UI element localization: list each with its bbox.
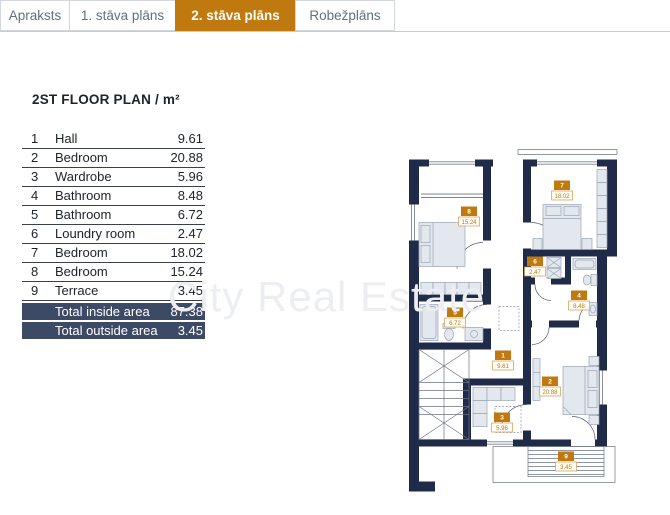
svg-text:5.96: 5.96 bbox=[496, 426, 508, 432]
room-area: 5.96 bbox=[178, 168, 205, 186]
room-area: 18.02 bbox=[170, 244, 205, 262]
table-row: 1Hall9.61 bbox=[22, 130, 205, 149]
room-name: Hall bbox=[55, 130, 178, 148]
room-area: 15.24 bbox=[170, 263, 205, 281]
room-label-1: 19.61 bbox=[493, 351, 514, 371]
total-row: Total outside area3.45 bbox=[22, 322, 205, 339]
tab-2-stāva-plāns[interactable]: 2. stāva plāns bbox=[175, 0, 296, 31]
svg-text:3.45: 3.45 bbox=[560, 465, 572, 471]
room-label-9: 93.45 bbox=[556, 452, 577, 472]
room-name: Loundry room bbox=[55, 225, 178, 243]
room-number: 5 bbox=[22, 206, 55, 224]
washing-machines bbox=[547, 258, 561, 279]
room-label-4: 48.48 bbox=[569, 291, 590, 311]
room-label-7: 718.02 bbox=[552, 181, 573, 201]
svg-text:2.47: 2.47 bbox=[529, 270, 541, 276]
room-name: Bathroom bbox=[55, 206, 178, 224]
svg-text:5: 5 bbox=[453, 310, 457, 317]
room-label-2: 220.88 bbox=[540, 377, 561, 397]
bedroom8-bed bbox=[419, 223, 465, 267]
svg-text:20.88: 20.88 bbox=[542, 390, 558, 396]
table-row: 5Bathroom6.72 bbox=[22, 206, 205, 225]
svg-text:18.02: 18.02 bbox=[554, 194, 570, 200]
tab-bar: Apraksts1. stāva plāns2. stāva plānsRobe… bbox=[0, 0, 670, 32]
svg-text:8: 8 bbox=[467, 209, 471, 216]
table-row: 8Bedroom15.24 bbox=[22, 263, 205, 282]
room-name: Wardrobe bbox=[55, 168, 178, 186]
table-row: 6Loundry room2.47 bbox=[22, 225, 205, 244]
page-title: 2ST FLOOR PLAN / m² bbox=[32, 92, 180, 107]
bathroom4-bathtub bbox=[573, 259, 596, 270]
content-area: 2ST FLOOR PLAN / m² 1Hall9.612Bedroom20.… bbox=[0, 32, 670, 514]
room-name: Bedroom bbox=[55, 244, 170, 262]
bathroom5-sink bbox=[465, 328, 483, 341]
room-number: 6 bbox=[22, 225, 55, 243]
bathroom4-toilet bbox=[583, 275, 597, 286]
room-area: 9.61 bbox=[178, 130, 205, 148]
floor-plan: 19.61220.8835.9648.4856.7262.47718.02815… bbox=[395, 144, 645, 500]
bedroom2-dresser bbox=[533, 359, 540, 401]
room-number: 9 bbox=[22, 282, 55, 300]
svg-text:2: 2 bbox=[548, 379, 552, 386]
room-area: 2.47 bbox=[178, 225, 205, 243]
room-label-8: 815.24 bbox=[459, 207, 480, 227]
table-row: 4Bathroom8.48 bbox=[22, 187, 205, 206]
room-name: Terrace bbox=[55, 282, 178, 300]
bedroom2-bed bbox=[563, 357, 599, 425]
hall-dashed-closet bbox=[499, 307, 519, 331]
svg-text:9.61: 9.61 bbox=[497, 364, 509, 370]
total-value: 87.38 bbox=[170, 303, 205, 320]
room-number: 7 bbox=[22, 244, 55, 262]
room-area: 20.88 bbox=[170, 149, 205, 167]
room-label-5: 56.72 bbox=[445, 308, 466, 328]
room-name: Bedroom bbox=[55, 149, 170, 167]
room-number: 1 bbox=[22, 130, 55, 148]
total-label: Total outside area bbox=[22, 322, 178, 339]
svg-text:15.24: 15.24 bbox=[461, 220, 477, 226]
bathroom5-shower bbox=[420, 305, 438, 341]
tab-apraksts[interactable]: Apraksts bbox=[0, 0, 70, 31]
svg-text:8.48: 8.48 bbox=[573, 304, 585, 310]
roof-overhang-lines bbox=[518, 150, 617, 155]
total-row: Total inside area87.38 bbox=[22, 303, 205, 320]
total-value: 3.45 bbox=[178, 322, 205, 339]
room-name: Bedroom bbox=[55, 263, 170, 281]
room-number: 3 bbox=[22, 168, 55, 186]
room-number: 4 bbox=[22, 187, 55, 205]
bedroom8-cabinets bbox=[421, 283, 481, 295]
total-label: Total inside area bbox=[22, 303, 170, 320]
bathroom4-sink bbox=[589, 303, 597, 316]
totals-table: Total inside area87.38Total outside area… bbox=[22, 303, 205, 341]
table-row: 2Bedroom20.88 bbox=[22, 149, 205, 168]
table-row: 7Bedroom18.02 bbox=[22, 244, 205, 263]
svg-text:4: 4 bbox=[577, 293, 581, 300]
tab-1-stāva-plāns[interactable]: 1. stāva plāns bbox=[69, 0, 176, 31]
bedroom7-bed bbox=[533, 205, 592, 250]
room-area: 8.48 bbox=[178, 187, 205, 205]
room-area: 6.72 bbox=[178, 206, 205, 224]
room-areas-table: 1Hall9.612Bedroom20.883Wardrobe5.964Bath… bbox=[22, 130, 205, 301]
tab-robežplāns[interactable]: Robežplāns bbox=[295, 0, 395, 31]
table-row: 3Wardrobe5.96 bbox=[22, 168, 205, 187]
table-row: 9Terrace3.45 bbox=[22, 282, 205, 301]
room-number: 2 bbox=[22, 149, 55, 167]
svg-text:6: 6 bbox=[533, 259, 537, 266]
terrace-deck bbox=[493, 447, 615, 483]
svg-text:9: 9 bbox=[564, 454, 568, 461]
svg-text:3: 3 bbox=[500, 415, 504, 422]
room-name: Bathroom bbox=[55, 187, 178, 205]
bedroom7-wardrobe bbox=[597, 170, 607, 248]
svg-text:7: 7 bbox=[560, 183, 564, 190]
room-area: 3.45 bbox=[178, 282, 205, 300]
floor-plan-drawing: 19.61220.8835.9648.4856.7262.47718.02815… bbox=[395, 144, 645, 500]
room-number: 8 bbox=[22, 263, 55, 281]
staircase bbox=[419, 350, 469, 440]
svg-text:6.72: 6.72 bbox=[449, 321, 461, 327]
svg-text:1: 1 bbox=[501, 353, 505, 360]
